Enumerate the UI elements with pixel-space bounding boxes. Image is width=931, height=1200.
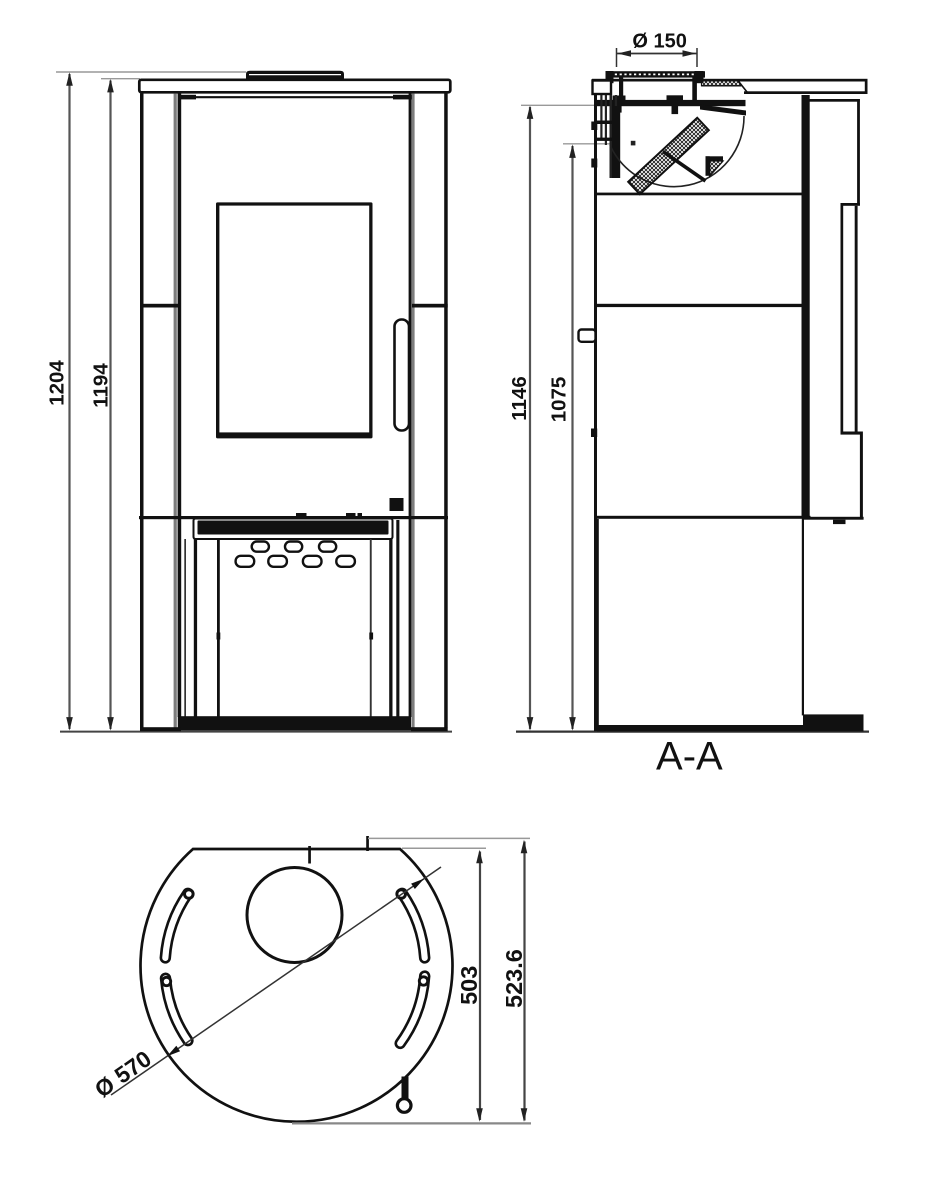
- svg-text:A-A: A-A: [656, 735, 723, 779]
- svg-text:1194: 1194: [89, 363, 112, 408]
- svg-text:1146: 1146: [508, 376, 531, 420]
- svg-text:1075: 1075: [547, 377, 570, 423]
- svg-text:Ø 150: Ø 150: [632, 31, 686, 53]
- svg-text:503: 503: [456, 966, 482, 1005]
- svg-text:1204: 1204: [45, 360, 68, 406]
- svg-text:523.6: 523.6: [501, 949, 527, 1008]
